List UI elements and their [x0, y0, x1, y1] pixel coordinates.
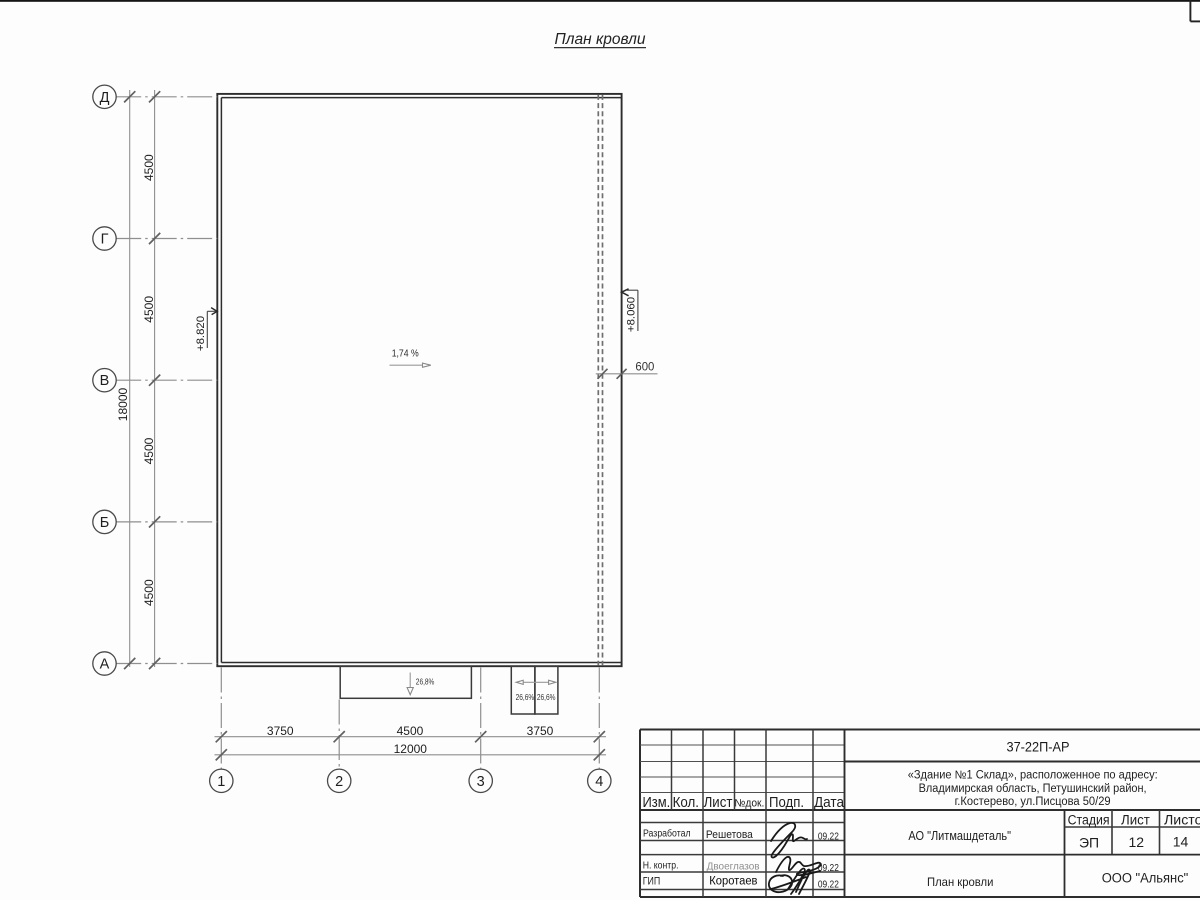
- svg-text:Лист: Лист: [704, 794, 733, 811]
- svg-text:План кровли: План кровли: [927, 875, 993, 889]
- svg-text:12: 12: [1129, 834, 1145, 850]
- svg-text:Б: Б: [100, 515, 110, 531]
- svg-text:3750: 3750: [267, 724, 294, 738]
- svg-text:Дата: Дата: [814, 794, 845, 811]
- svg-text:Владимирская область, Петушинс: Владимирская область, Петушинский район,: [919, 783, 1147, 795]
- svg-text:Кол.: Кол.: [673, 794, 699, 811]
- svg-text:Изм.: Изм.: [643, 794, 671, 811]
- svg-text:г.Костерево, ул.Писцова 50/29: г.Костерево, ул.Писцова 50/29: [955, 796, 1111, 808]
- svg-text:Лист: Лист: [1121, 812, 1150, 828]
- svg-text:26,8%: 26,8%: [416, 677, 435, 687]
- svg-text:1,74 %: 1,74 %: [392, 349, 419, 360]
- svg-text:4500: 4500: [142, 296, 156, 323]
- svg-text:Н. контр.: Н. контр.: [643, 861, 679, 872]
- svg-text:3: 3: [477, 774, 485, 790]
- svg-text:В: В: [100, 373, 110, 389]
- svg-text:ГИП: ГИП: [643, 876, 661, 888]
- svg-text:1: 1: [217, 774, 225, 790]
- svg-text:12000: 12000: [394, 742, 428, 756]
- svg-text:Стадия: Стадия: [1068, 813, 1110, 828]
- svg-text:18000: 18000: [116, 387, 130, 421]
- svg-text:Г: Г: [101, 232, 109, 248]
- svg-text:+8.820: +8.820: [195, 316, 207, 351]
- svg-text:600: 600: [635, 361, 654, 373]
- svg-text:Д: Д: [100, 90, 110, 106]
- svg-text:37-22П-АР: 37-22П-АР: [1007, 740, 1070, 755]
- svg-text:09.22: 09.22: [818, 831, 839, 843]
- svg-text:Подп.: Подп.: [769, 794, 804, 811]
- svg-text:Коротаев: Коротаев: [709, 876, 757, 888]
- svg-text:№док.: №док.: [734, 798, 764, 810]
- svg-text:Разработал: Разработал: [643, 829, 691, 840]
- svg-text:ООО "Альянс": ООО "Альянс": [1102, 871, 1189, 886]
- svg-text:4500: 4500: [142, 437, 156, 464]
- svg-text:4500: 4500: [142, 579, 156, 606]
- svg-text:Двоеглазов: Двоеглазов: [707, 861, 760, 873]
- svg-text:А: А: [100, 657, 110, 673]
- svg-text:26,6%: 26,6%: [537, 692, 556, 702]
- svg-text:09.22: 09.22: [818, 878, 839, 890]
- svg-text:Листов: Листов: [1164, 812, 1200, 828]
- svg-text:4500: 4500: [397, 724, 424, 738]
- svg-text:14: 14: [1173, 833, 1189, 849]
- svg-text:ЭП: ЭП: [1079, 835, 1099, 851]
- svg-text:2: 2: [335, 774, 343, 790]
- svg-text:Решетова: Решетова: [706, 829, 754, 841]
- svg-text:26,6%: 26,6%: [516, 692, 535, 702]
- svg-text:4: 4: [595, 774, 603, 790]
- svg-text:3750: 3750: [527, 724, 554, 738]
- svg-text:«Здание №1 Склад», расположенн: «Здание №1 Склад», расположенное по адре…: [908, 769, 1158, 781]
- svg-text:4500: 4500: [142, 154, 156, 181]
- svg-text:План кровли: План кровли: [555, 31, 646, 48]
- svg-text:АО "Литмашдеталь": АО "Литмашдеталь": [908, 829, 1011, 843]
- svg-text:+8.060: +8.060: [626, 297, 638, 332]
